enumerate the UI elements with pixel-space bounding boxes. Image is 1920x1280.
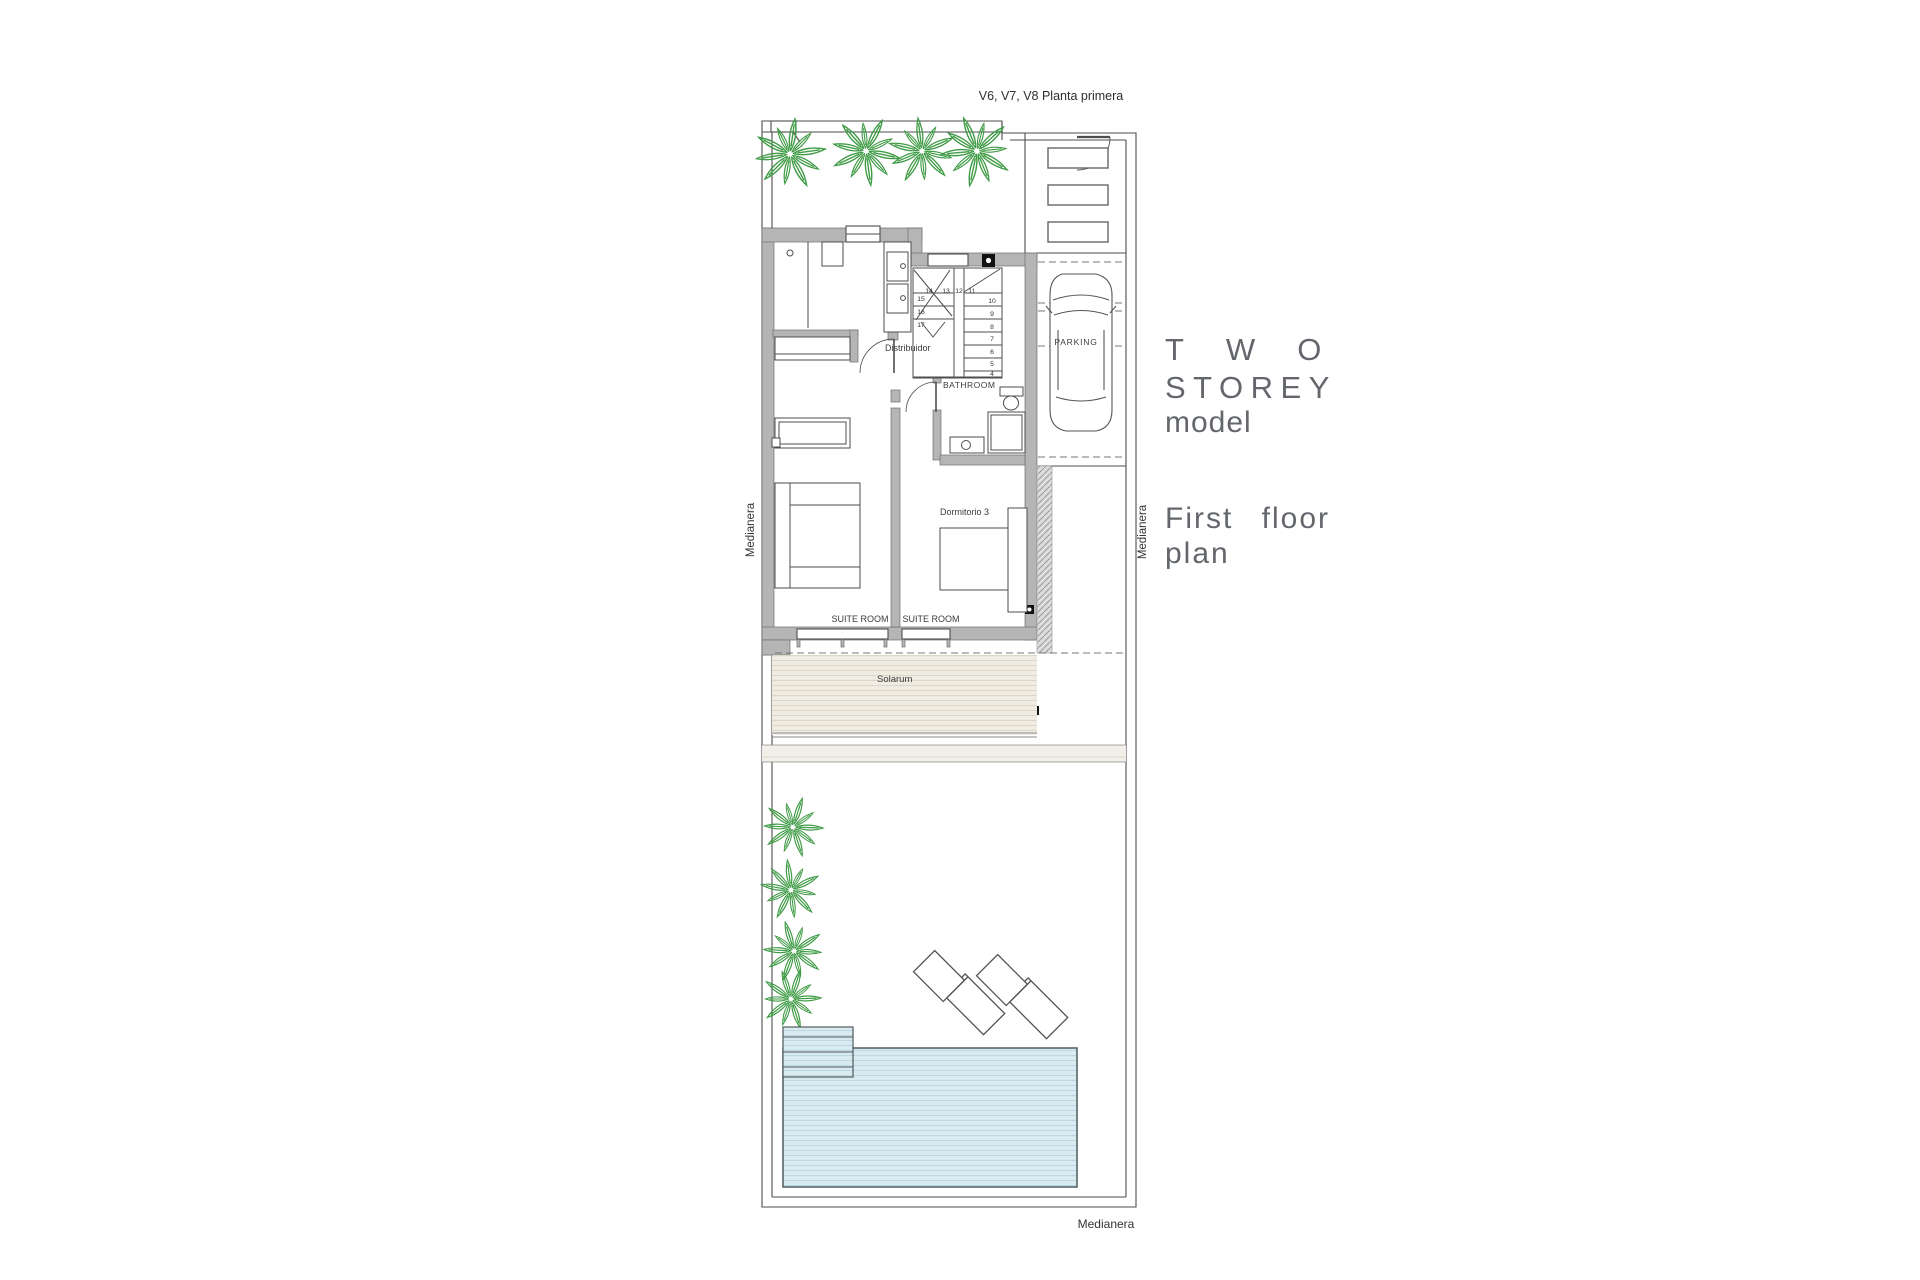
sill-tick — [902, 639, 905, 647]
shower-tray — [988, 412, 1025, 453]
stair-step-14: 14 — [925, 288, 933, 295]
palm-icon — [824, 107, 910, 192]
wardrobe-upper — [822, 242, 843, 266]
drawing-title: V6, V7, V8 Planta primera — [979, 89, 1124, 103]
panel-line-first-floor: First floor — [1165, 502, 1330, 535]
stair-step-11: 11 — [968, 288, 975, 295]
suite-left-window — [797, 629, 888, 639]
stair-step-10: 10 — [988, 298, 996, 305]
toilet-tank — [1000, 387, 1023, 396]
wall-top-a — [762, 228, 922, 242]
bathroom-fixtures — [950, 387, 1025, 453]
palm-icon — [755, 911, 832, 988]
label-distribuidor: Distribuidor — [885, 343, 931, 353]
vanity — [950, 437, 984, 453]
suite-left-furniture — [772, 418, 860, 588]
lounge-chairs — [914, 947, 1068, 1042]
bed-dormitorio-3 — [940, 528, 1008, 590]
floor-plan-page: 14 13 12 11 15 16 17 10 9 8 7 6 5 4 — [0, 0, 1920, 1280]
palm-icon — [760, 792, 828, 859]
wall-suite-divider — [891, 408, 900, 627]
floor-plan-drawing: 14 13 12 11 15 16 17 10 9 8 7 6 5 4 — [0, 0, 1920, 1280]
wall-bathroom-bottom — [940, 455, 1025, 465]
party-wall-hatch — [1037, 466, 1052, 653]
label-dormitorio-3: Dormitorio 3 — [940, 507, 989, 517]
palm-icon — [756, 119, 825, 187]
label-suite-room-left: SUITE ROOM — [831, 614, 888, 624]
stair-step-4: 4 — [990, 371, 994, 378]
panel-text: TWO STOREY model First floor plan — [1165, 332, 1363, 570]
dormitorio3-furniture — [940, 508, 1027, 612]
label-suite-room-right: SUITE ROOM — [902, 614, 959, 624]
pool — [783, 1027, 1077, 1187]
palm-icon — [759, 966, 826, 1034]
walkway-band — [762, 745, 1126, 762]
stair-step-9: 9 — [990, 311, 994, 318]
stair-step-6: 6 — [990, 349, 994, 356]
garden-palms — [752, 792, 833, 1033]
panel-line-model: model — [1165, 406, 1252, 439]
bathroom-jamb-lower — [933, 410, 941, 460]
label-medianera-right: Medianera — [1137, 504, 1149, 559]
stair-step-17: 17 — [917, 322, 925, 329]
label-parking: PARKING — [1054, 337, 1097, 347]
label-solarium: Solarum — [877, 674, 912, 685]
palm-icon — [930, 102, 1027, 199]
bed-suite-left — [775, 483, 860, 588]
stair-step-15: 15 — [917, 296, 925, 303]
suite-right-window — [902, 629, 950, 639]
stair-step-16: 16 — [917, 309, 925, 316]
stair-step-5: 5 — [990, 361, 994, 368]
wardrobe-lower — [775, 337, 850, 360]
palm-icon — [752, 849, 833, 930]
wall-top-b — [908, 253, 1037, 266]
panel-line-storey: STOREY — [1165, 370, 1337, 405]
label-medianera-bottom: Medianera — [1078, 1217, 1135, 1231]
door-jamb — [891, 390, 900, 402]
hook — [772, 438, 780, 447]
sill-tick — [884, 639, 887, 647]
solarium-deck: Solarum — [772, 653, 1126, 737]
car — [1046, 274, 1116, 431]
stair-window — [928, 254, 968, 266]
staircase — [913, 268, 1002, 378]
wall-room1-bottom — [773, 330, 858, 337]
panel-line-two: TWO — [1165, 332, 1363, 367]
entry-path-steps — [1048, 148, 1108, 242]
stair-step-12: 12 — [955, 288, 963, 295]
room-top-left — [787, 242, 843, 328]
terrace-palms — [756, 102, 1027, 199]
palm-icon — [883, 111, 962, 189]
panel-line-plan: plan — [1165, 537, 1230, 570]
label-bathroom: BATHROOM — [943, 380, 995, 390]
parking-area: PARKING — [1037, 253, 1126, 653]
sill-tick — [947, 639, 950, 647]
stair-step-7: 7 — [990, 336, 994, 343]
stair-step-13: 13 — [942, 288, 950, 295]
toilet-bowl — [1004, 396, 1019, 410]
sill-tick — [841, 639, 844, 647]
ceiling-light — [787, 250, 793, 256]
sill-tick — [797, 639, 800, 647]
closet-column — [884, 242, 911, 332]
wall-wardrobe-side — [850, 330, 858, 362]
bed-headboard — [1008, 508, 1027, 612]
label-medianera-left: Medianera — [745, 502, 757, 557]
stair-step-8: 8 — [990, 324, 994, 331]
